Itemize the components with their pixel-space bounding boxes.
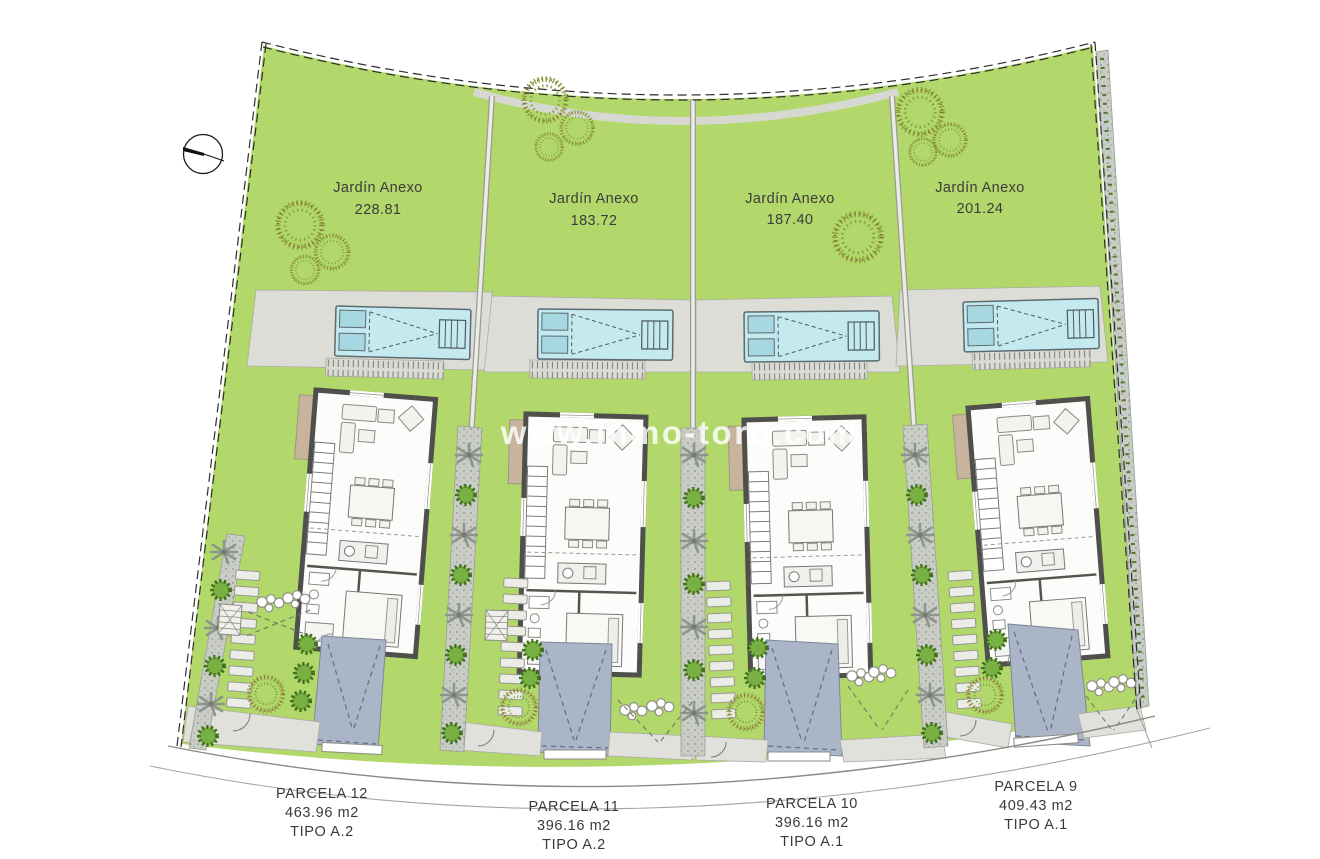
parcel-name-11: PARCELA 11: [529, 799, 620, 815]
driveway-parcel-9: [1008, 624, 1090, 746]
pool-parcel-11: [538, 309, 673, 360]
garden-area-parcel-9: 201.24: [957, 201, 1004, 217]
driveway-parcel-10: [764, 640, 842, 756]
garden-label-parcel-12: Jardín Anexo: [333, 180, 422, 196]
site-plan: Jardín Anexo 228.81 Jardín Anexo 183.72 …: [0, 0, 1320, 859]
parcel-tipo-10: TIPO A.1: [780, 834, 844, 850]
parcel-tipo-9: TIPO A.1: [1004, 817, 1068, 833]
house-parcel-12: [280, 389, 436, 657]
gate-parcel-10: [768, 752, 830, 761]
parcel-area-9: 409.43 m2: [999, 798, 1073, 814]
garden-label-parcel-9: Jardín Anexo: [935, 180, 1024, 196]
garden-area-parcel-12: 228.81: [355, 202, 402, 218]
parcel-name-9: PARCELA 9: [994, 779, 1077, 795]
parcel-name-12: PARCELA 12: [276, 786, 368, 802]
pool-parcel-10: [744, 311, 879, 362]
north-arrow-icon: [183, 135, 224, 174]
parcel-area-10: 396.16 m2: [775, 815, 849, 831]
parcel-area-12: 463.96 m2: [285, 805, 359, 821]
garden-label-parcel-11: Jardín Anexo: [549, 191, 638, 207]
site-plan-svg: Jardín Anexo 228.81 Jardín Anexo 183.72 …: [0, 0, 1320, 859]
parcel-area-11: 396.16 m2: [537, 818, 611, 834]
pool-parcel-12: [335, 306, 471, 360]
parcel-tipo-11: TIPO A.2: [542, 837, 606, 853]
parcel-name-10: PARCELA 10: [766, 796, 858, 812]
garden-area-parcel-11: 183.72: [571, 213, 618, 229]
parcel-tipo-12: TIPO A.2: [290, 824, 354, 840]
gate-parcel-11: [544, 750, 606, 759]
pool-parcel-9: [963, 298, 1099, 352]
garden-label-parcel-10: Jardín Anexo: [745, 191, 834, 207]
parcel-labels: PARCELA 12 463.96 m2 TIPO A.2 PARCELA 11…: [276, 779, 1078, 853]
driveway-parcel-12: [312, 636, 386, 750]
house-parcel-10: [728, 417, 871, 678]
garden-area-parcel-10: 187.40: [767, 212, 814, 228]
watermark: www.inmo-toro.com: [500, 414, 859, 451]
